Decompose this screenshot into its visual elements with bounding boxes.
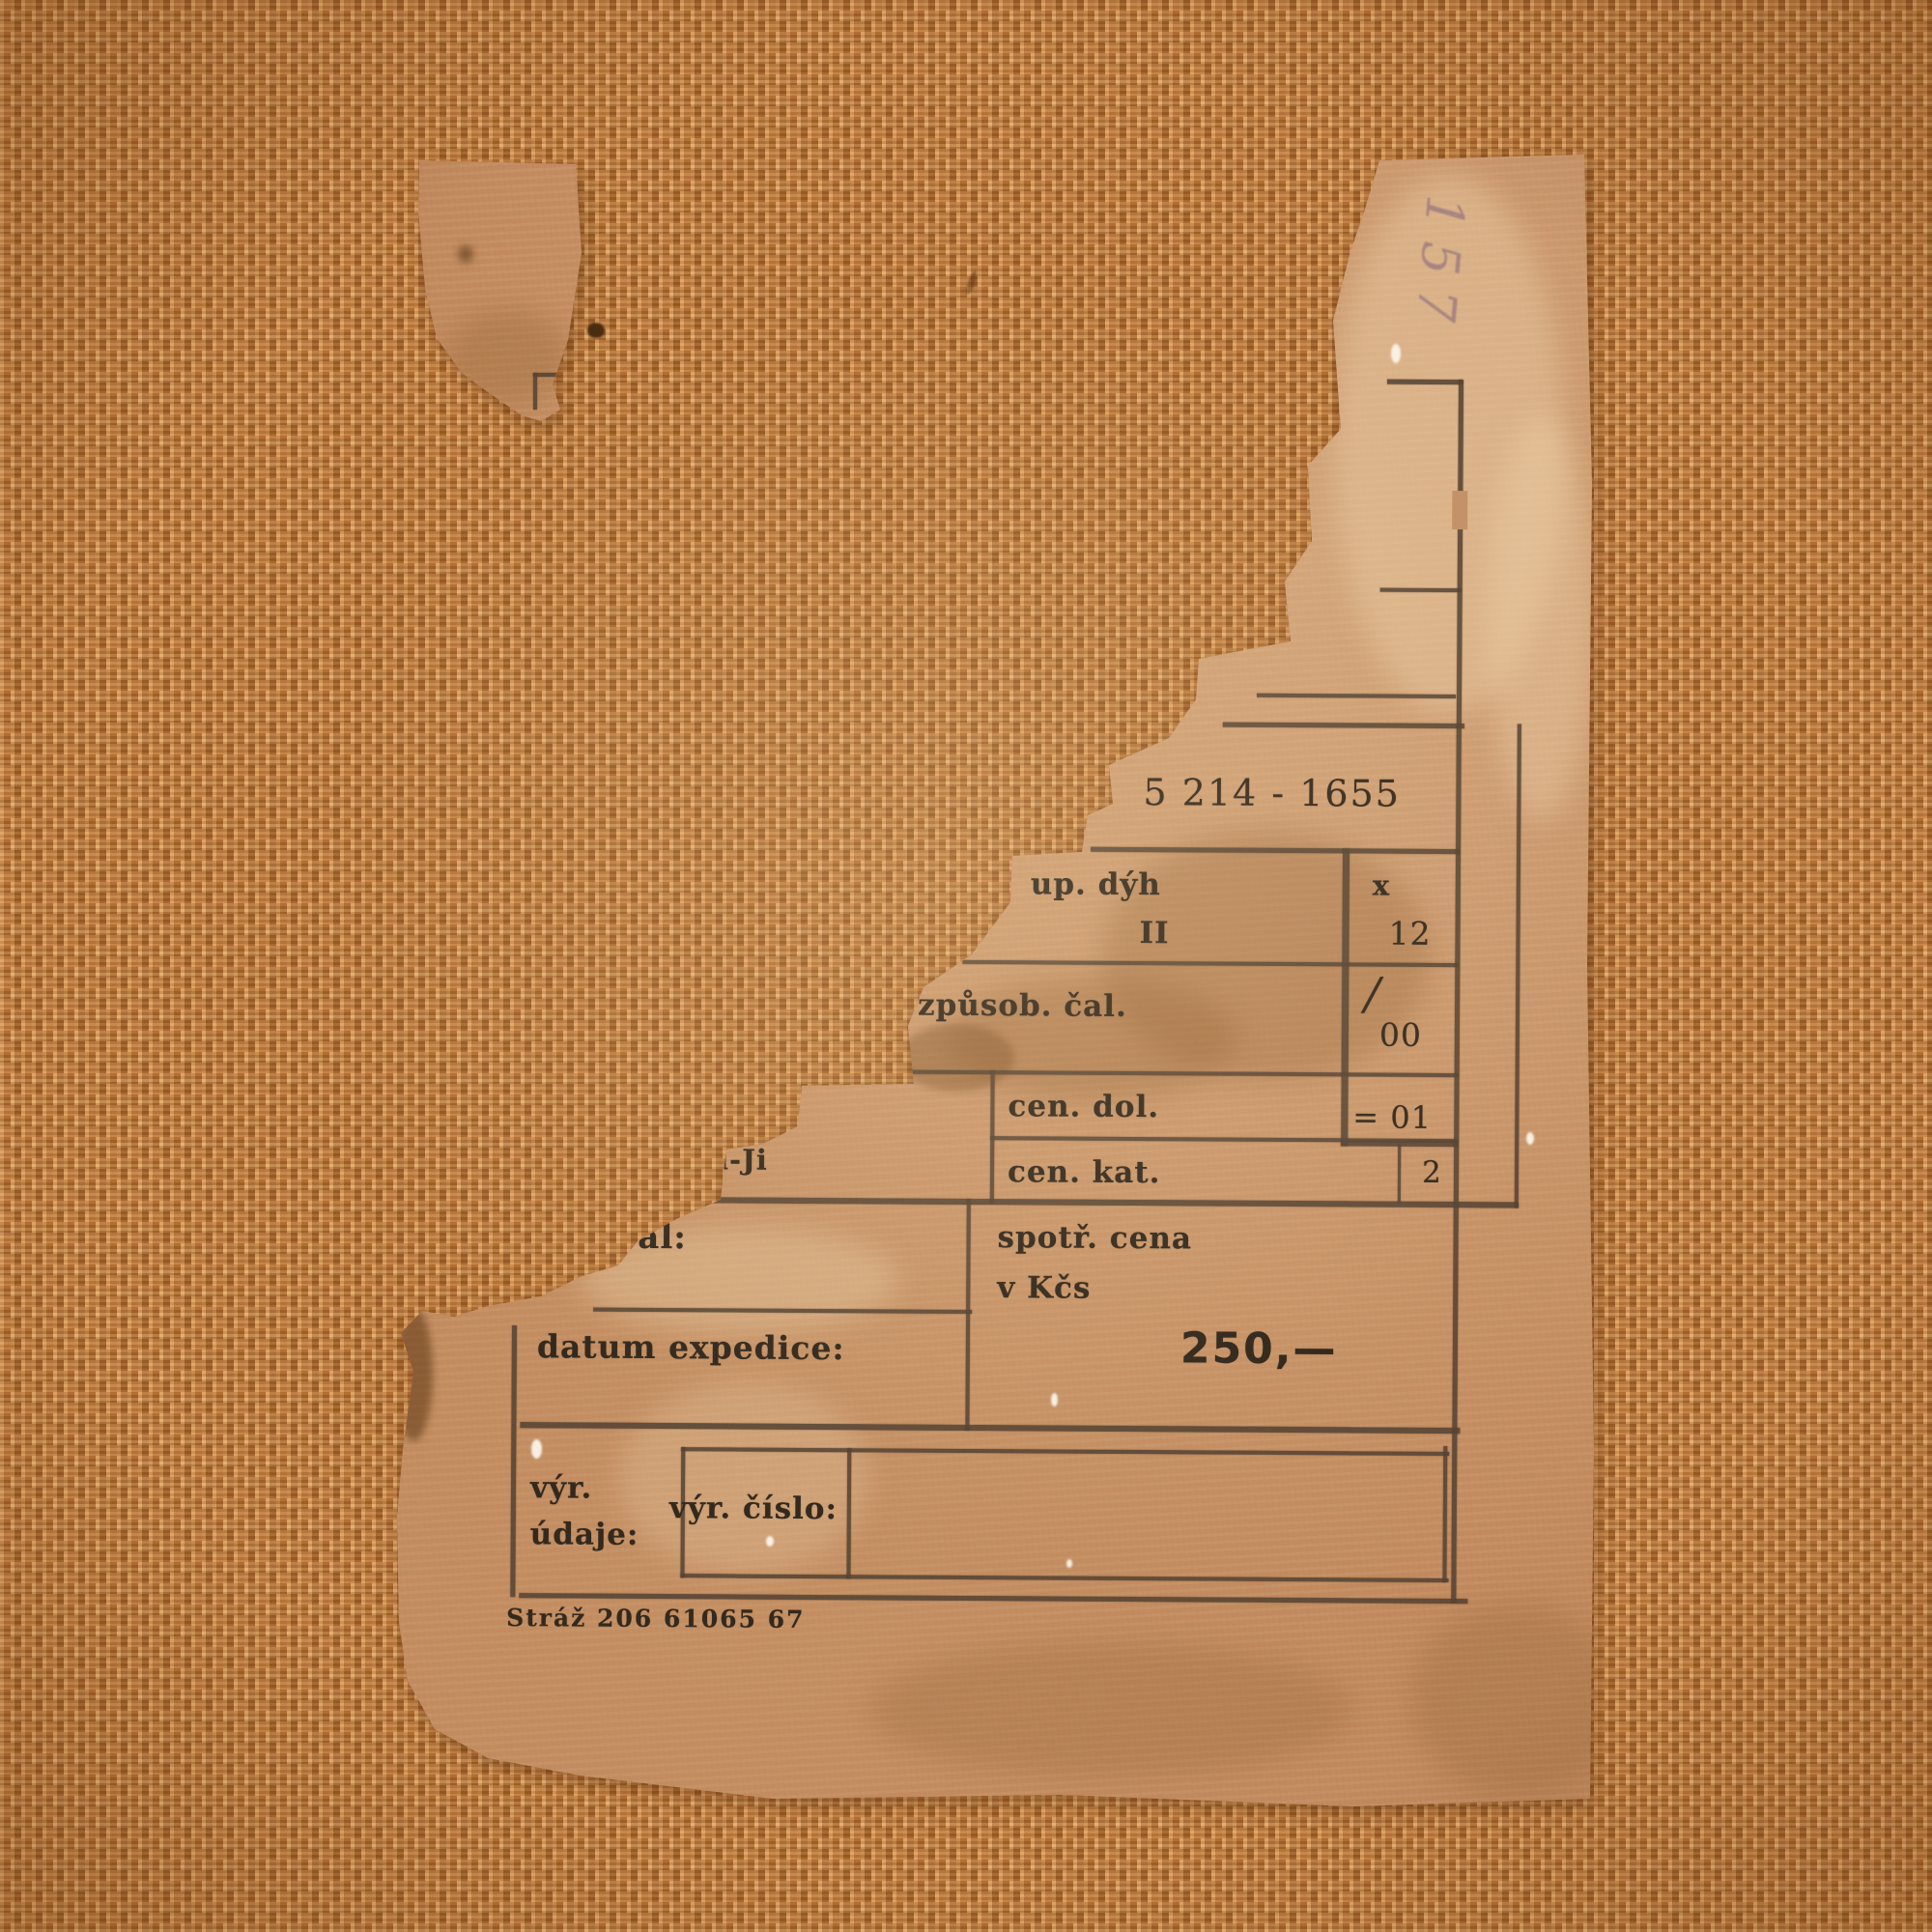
table-line (1257, 694, 1456, 698)
photo-of-label-on-burlap: 157 (0, 0, 1932, 1932)
table-border-right (1451, 380, 1463, 1603)
label-field-zpusob-cal: způsob. čal. (918, 988, 1127, 1024)
table-line (893, 1069, 1459, 1077)
torn-label-shadow: 157 (0, 0, 1932, 1932)
label-code-2: 2 (1422, 1155, 1442, 1190)
label-model-number: 5 214 - 1655 (1143, 771, 1401, 815)
label-field-cen-dol: cen. dol. (1008, 1089, 1159, 1124)
table-line (1380, 588, 1462, 593)
label-field-datum-expedice: datum expedice: (537, 1327, 845, 1367)
table-line (990, 1070, 995, 1203)
table-line (593, 1308, 972, 1314)
label-field-spotr-cena: spotř. cena (997, 1220, 1192, 1256)
table-line (1515, 724, 1521, 1207)
table-line (965, 1199, 970, 1431)
table-border-left (510, 1325, 517, 1597)
table-line (681, 1197, 1519, 1207)
label-field-dyh: up. dýh (1031, 867, 1161, 902)
label-field-vyr-cislo: výr. číslo: (669, 1491, 838, 1526)
torn-label-paper: 157 (0, 0, 1932, 1932)
crease-gap (1452, 491, 1467, 529)
table-line (1387, 380, 1463, 384)
table-line (519, 1593, 1467, 1604)
inner-box-divider (846, 1448, 851, 1578)
label-field-udaje: údaje: (530, 1517, 639, 1552)
label-field-vyr: výr. (530, 1470, 593, 1505)
table-line (680, 1574, 1448, 1582)
white-speck (1391, 344, 1401, 363)
label-slash-mark: / (1359, 968, 1386, 1020)
label-field-val: val: (617, 1218, 687, 1257)
table-line (681, 1447, 1449, 1456)
label-mark-x: x (1373, 869, 1391, 902)
label-code-00: 00 (1379, 1016, 1422, 1054)
label-torn-text: l-Ji (718, 1143, 768, 1176)
printed-table: 5 214 - 1655 up. dýh II x 12 způsob. čal… (0, 0, 1932, 1932)
table-line (1091, 847, 1460, 854)
label-price-value: 250,— (1180, 1323, 1338, 1374)
white-speck (531, 1439, 542, 1459)
table-line (520, 1422, 1460, 1434)
label-code-01: = 01 (1352, 1098, 1432, 1135)
inner-box-right (1442, 1446, 1447, 1582)
table-line (962, 960, 1459, 967)
white-speck (1526, 1132, 1534, 1145)
table-line (1398, 1145, 1401, 1203)
white-speck (1051, 1393, 1058, 1406)
table-line (1223, 723, 1464, 729)
white-speck (1066, 1559, 1072, 1568)
table-line (895, 1000, 899, 1074)
label-code-12: 12 (1388, 915, 1431, 952)
label-field-v-kcs: v Kčs (997, 1270, 1091, 1306)
label-value-dyh: II (1139, 916, 1169, 951)
label-printer-footer: Stráž 206 61065 67 (506, 1604, 805, 1634)
table-line (1341, 848, 1350, 1146)
white-speck (766, 1536, 774, 1547)
label-field-cen-kat: cen. kat. (1008, 1154, 1161, 1190)
